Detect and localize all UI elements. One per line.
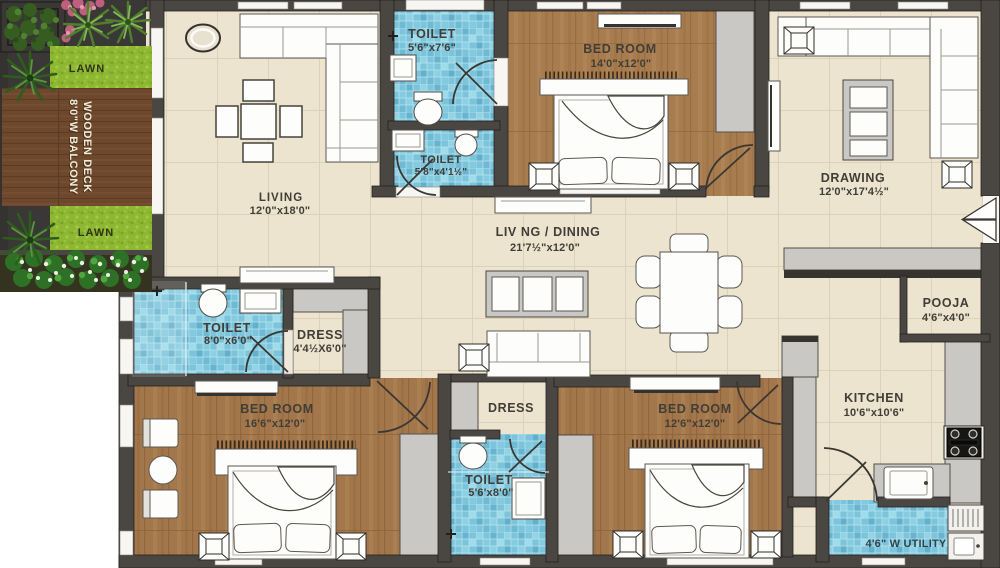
svg-text:8'0"W BALCONY: 8'0"W BALCONY — [67, 99, 79, 195]
svg-text:BED ROOM: BED ROOM — [658, 402, 732, 416]
svg-text:TOILET: TOILET — [420, 154, 461, 166]
svg-text:TOILET: TOILET — [408, 27, 456, 41]
svg-text:4'6"x4'0": 4'6"x4'0" — [922, 312, 970, 324]
svg-text:16'6"x12'0": 16'6"x12'0" — [245, 418, 306, 430]
svg-text:TOILET: TOILET — [203, 321, 251, 335]
svg-text:LAWN: LAWN — [69, 63, 105, 75]
svg-text:5'6"x7'6": 5'6"x7'6" — [408, 42, 456, 54]
svg-text:4'6" W UTILITY: 4'6" W UTILITY — [866, 538, 947, 550]
svg-text:12'0"x18'0": 12'0"x18'0" — [250, 205, 311, 217]
svg-text:12'6"x12'0": 12'6"x12'0" — [665, 418, 726, 430]
svg-text:LIV NG / DINING: LIV NG / DINING — [496, 225, 601, 239]
svg-text:POOJA: POOJA — [923, 296, 970, 310]
svg-text:LIVING: LIVING — [259, 192, 303, 204]
svg-text:KITCHEN: KITCHEN — [844, 391, 904, 405]
svg-text:5'8"x4'1½": 5'8"x4'1½" — [415, 167, 467, 178]
svg-text:BED ROOM: BED ROOM — [583, 42, 657, 56]
svg-text:DRAWING: DRAWING — [821, 171, 886, 185]
svg-text:DRESS: DRESS — [297, 328, 343, 342]
svg-text:TOILET: TOILET — [465, 473, 513, 487]
svg-text:10'6"x10'6": 10'6"x10'6" — [844, 407, 905, 419]
svg-text:14'0"x12'0": 14'0"x12'0" — [591, 58, 652, 70]
svg-text:5'6'x8'0": 5'6'x8'0" — [468, 487, 513, 499]
svg-text:8'0"x6'0": 8'0"x6'0" — [204, 335, 252, 347]
svg-text:WOODEN DECK: WOODEN DECK — [81, 101, 93, 193]
svg-text:21'7½"x12'0": 21'7½"x12'0" — [510, 242, 580, 254]
svg-text:12'0"x17'4½": 12'0"x17'4½" — [819, 186, 889, 198]
svg-text:LAWN: LAWN — [78, 227, 114, 239]
svg-text:BED ROOM: BED ROOM — [240, 402, 314, 416]
svg-text:DRESS: DRESS — [488, 401, 534, 415]
svg-text:4'4½X6'0": 4'4½X6'0" — [293, 343, 346, 355]
